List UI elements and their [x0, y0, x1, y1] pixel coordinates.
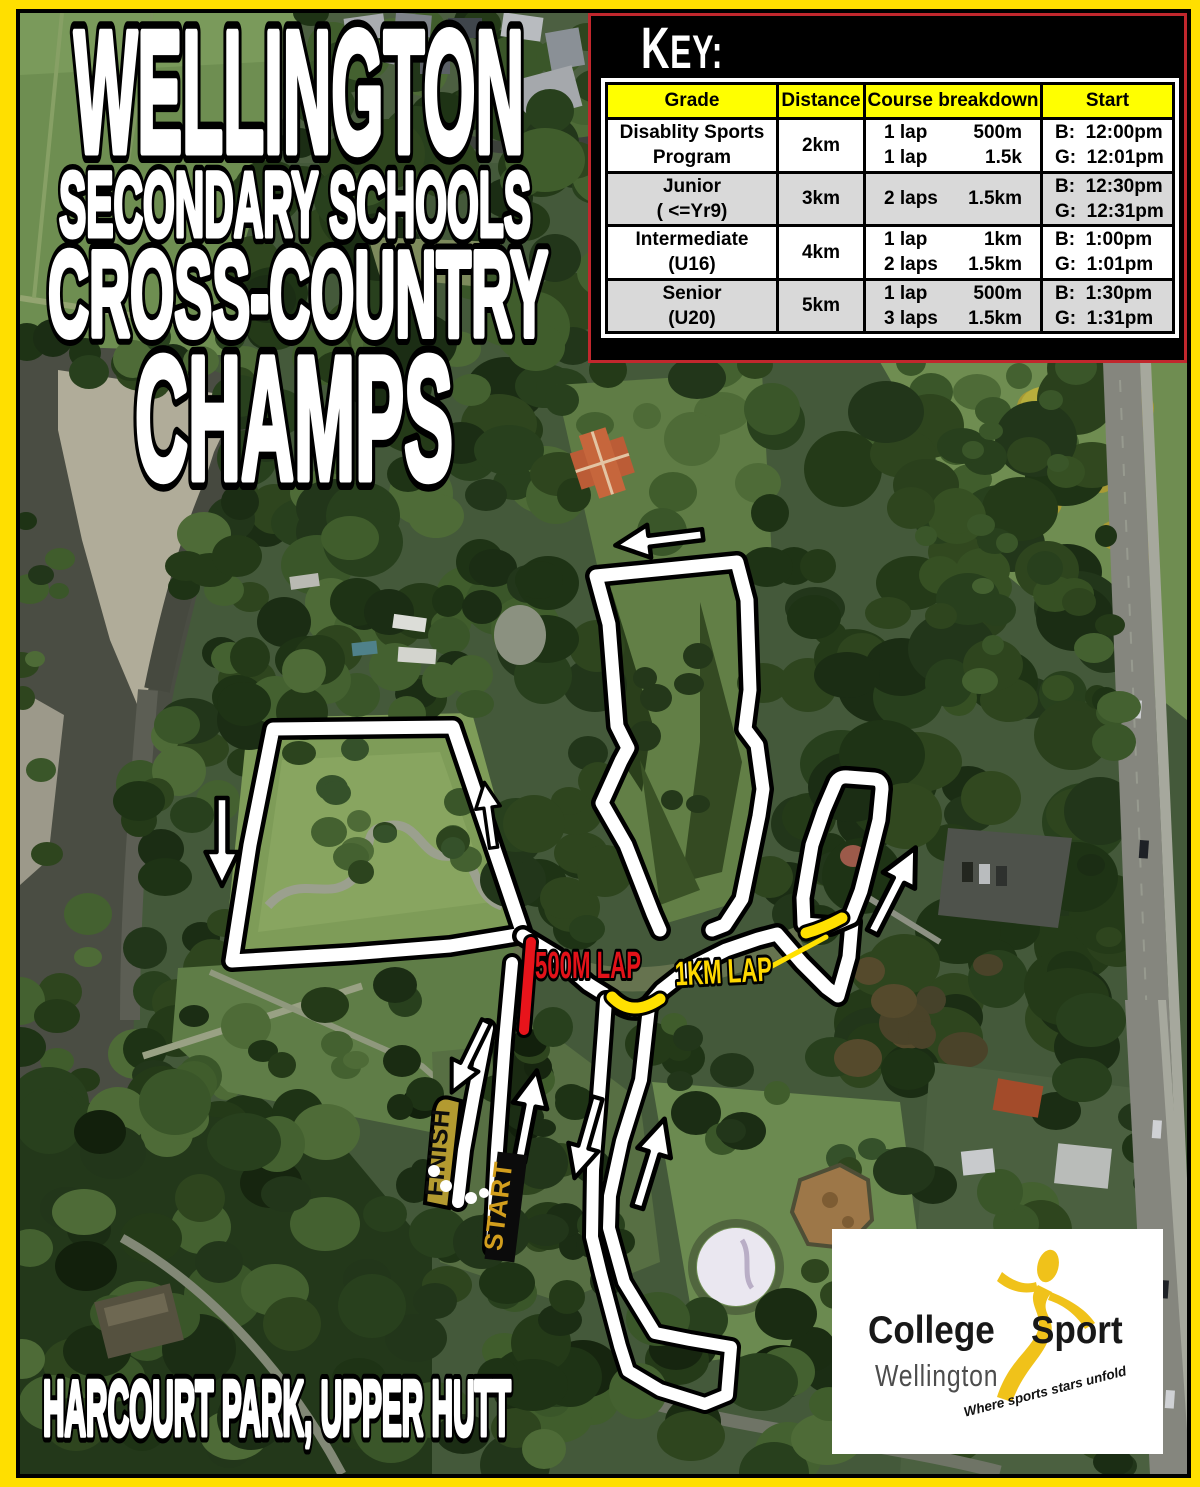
- svg-text:500M LAP: 500M LAP: [535, 945, 641, 987]
- svg-text:HARCOURT PARK, UPPER HUTT: HARCOURT PARK, UPPER HUTT: [43, 1364, 511, 1452]
- svg-text:CHAMPS: CHAMPS: [135, 321, 453, 517]
- svg-text:1KM LAP: 1KM LAP: [674, 951, 773, 994]
